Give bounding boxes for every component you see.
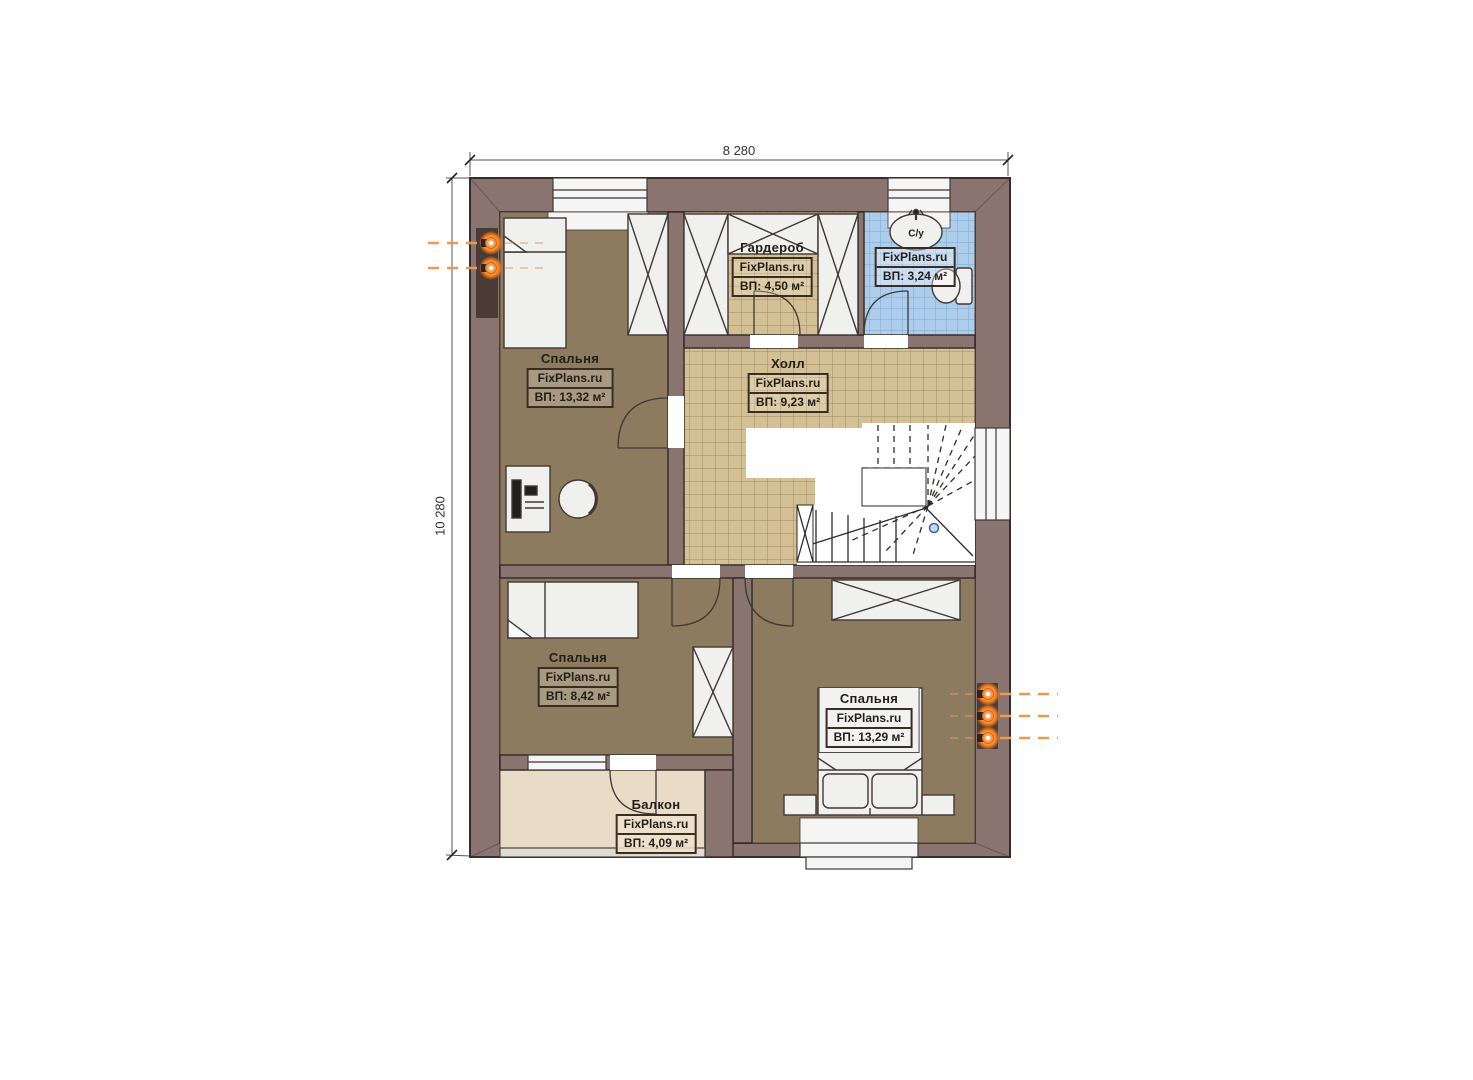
wardrobe-unit [693, 647, 733, 737]
stair-level-marker [930, 524, 939, 533]
stair-landing [862, 468, 926, 506]
nightstand [922, 795, 954, 815]
window-bottom [800, 843, 918, 857]
office-chair [559, 480, 597, 518]
floor-balcony [500, 770, 705, 848]
balcony-railing [500, 848, 705, 857]
wardrobe-unit [684, 214, 728, 335]
desk [506, 466, 550, 532]
window-top-left [553, 178, 647, 212]
bed-single [504, 218, 566, 348]
nightstand [784, 795, 816, 815]
wardrobe-unit [818, 214, 858, 335]
wardrobe-unit [628, 214, 668, 335]
window-bottom-sill [806, 857, 912, 869]
bed-double [818, 688, 922, 815]
wardrobe-unit [832, 580, 960, 620]
window-top-right [888, 178, 950, 212]
floor-plan-page: 8 280 10 280 Спальня FixPlans.ru ВП: 13,… [0, 0, 1473, 1080]
bed-single [508, 582, 638, 638]
floor-plan-drawing [0, 0, 1473, 1080]
toilet [932, 268, 972, 304]
window-right-stairs [975, 428, 1010, 520]
window-recess [800, 818, 918, 843]
wardrobe-unit [728, 214, 818, 254]
stair-baluster [797, 505, 813, 562]
